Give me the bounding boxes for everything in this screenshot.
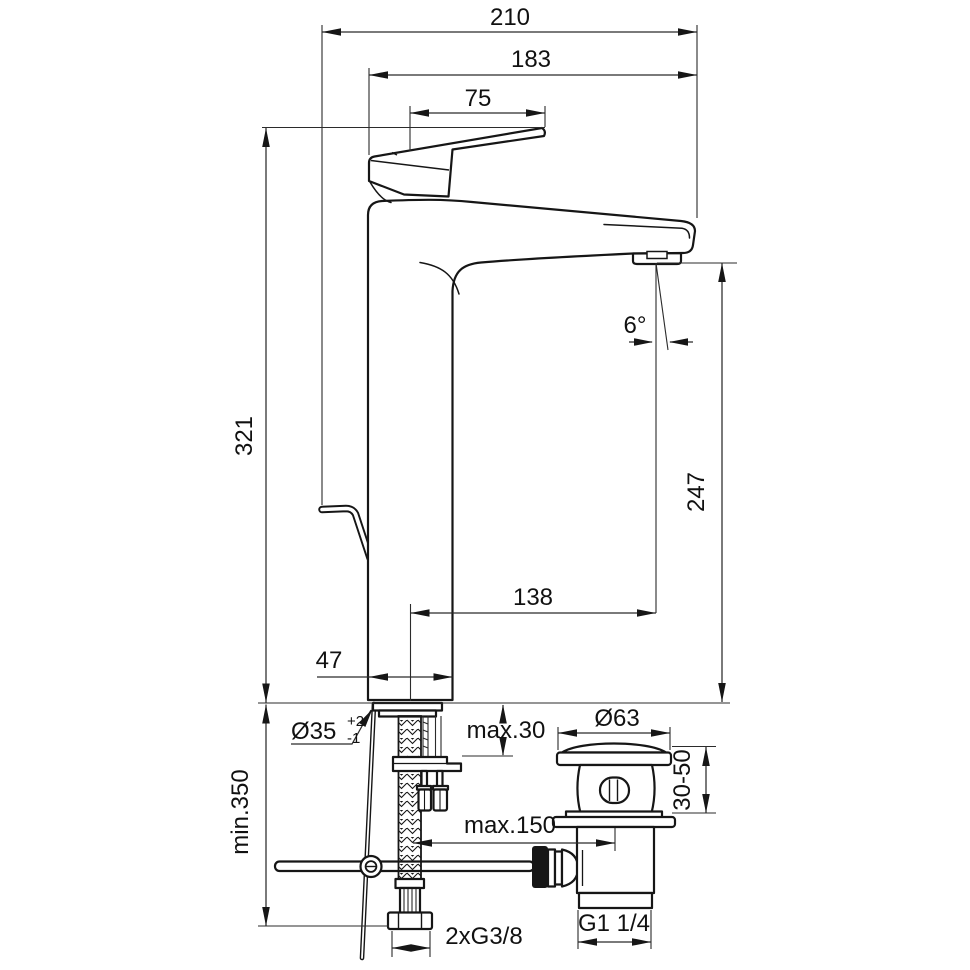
dim-210-label: 210	[490, 4, 530, 31]
dim-138-label: 138	[513, 584, 553, 611]
dim-3050-label: 30-50	[669, 749, 696, 810]
dim-d63-label: Ø63	[594, 705, 639, 732]
dim-min350-label: min.350	[227, 769, 254, 854]
dim-g114-label: G1 1/4	[578, 910, 650, 937]
dim-321-label: 321	[231, 416, 258, 456]
mounting-shank	[373, 703, 442, 717]
dim-2xg38-label: 2xG3/8	[445, 923, 522, 950]
overflow-slot	[600, 778, 629, 804]
dim-183-label: 183	[511, 46, 551, 73]
dim-max150-label: max.150	[464, 812, 556, 839]
waste-lower-flange	[553, 817, 675, 827]
dim-75-label: 75	[465, 85, 492, 112]
faucet-dimension-drawing: 210 183 75 321 min.350 247 138 6° 47 Ø35…	[0, 0, 970, 970]
dim-47-label: 47	[316, 647, 343, 674]
dim-max30-label: max.30	[467, 717, 546, 744]
dim-247-label: 247	[683, 472, 710, 512]
technical-drawing-page: 210 183 75 321 min.350 247 138 6° 47 Ø35…	[0, 0, 970, 970]
aerator	[633, 252, 681, 265]
ball-joint	[361, 856, 382, 877]
linkage-nut	[532, 846, 548, 888]
waste-tailpipe	[579, 893, 652, 908]
dim-6deg-label: 6°	[624, 312, 647, 339]
waste-cap	[557, 744, 671, 766]
dim-d35-label: Ø35+2-1	[291, 713, 364, 747]
hose-nut	[388, 913, 432, 930]
